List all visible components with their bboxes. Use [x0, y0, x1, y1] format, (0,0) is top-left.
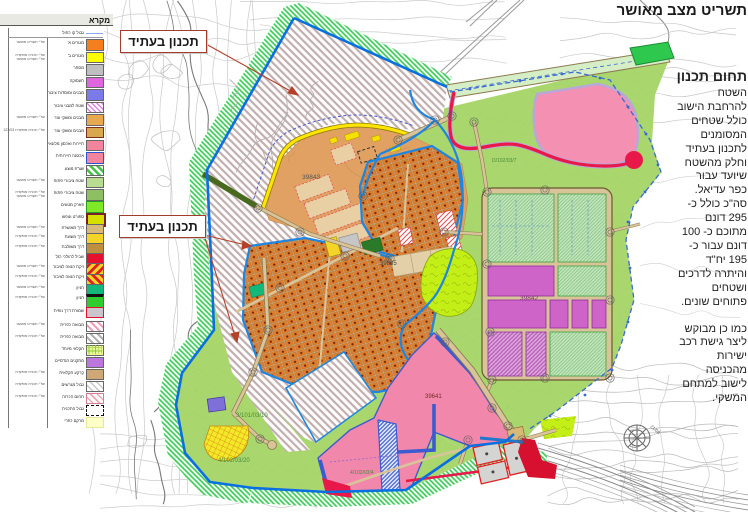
svg-text:D/102/03/7: D/102/03/7 [492, 158, 517, 164]
svg-text:4/102/03/4: 4/102/03/4 [350, 470, 374, 476]
svg-text:4/102/03/20: 4/102/03/20 [218, 458, 250, 464]
svg-text:39843: 39843 [302, 174, 320, 181]
svg-text:39641: 39641 [425, 394, 442, 400]
svg-text:39842: 39842 [520, 295, 538, 302]
svg-text:3/101/03/10: 3/101/03/10 [236, 413, 268, 419]
svg-text:39835: 39835 [380, 261, 397, 267]
